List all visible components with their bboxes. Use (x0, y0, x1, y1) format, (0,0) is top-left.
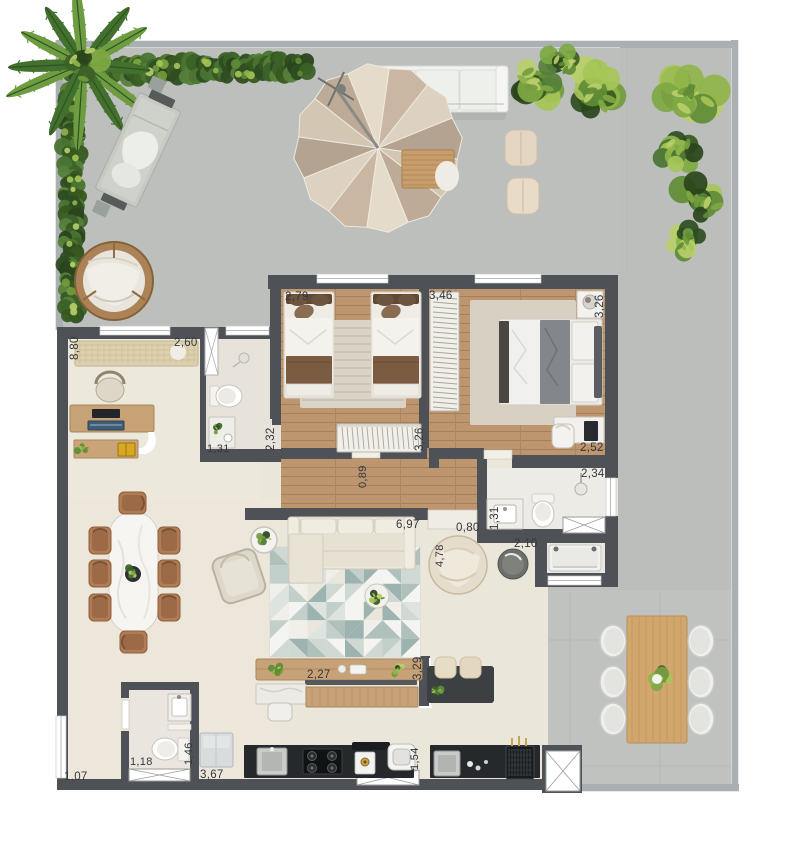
svg-text:2,32: 2,32 (265, 427, 277, 451)
svg-text:6,97: 6,97 (396, 519, 420, 531)
svg-text:2,34: 2,34 (581, 468, 605, 480)
svg-text:2,60: 2,60 (174, 337, 198, 349)
svg-text:0,80: 0,80 (456, 522, 480, 534)
svg-text:4,78: 4,78 (434, 544, 446, 567)
svg-text:3,29: 3,29 (412, 656, 424, 680)
svg-text:2,10: 2,10 (514, 538, 538, 550)
svg-text:3,67: 3,67 (200, 769, 224, 781)
svg-text:0,89: 0,89 (357, 465, 369, 488)
svg-text:1,07: 1,07 (64, 771, 88, 783)
svg-text:8,80: 8,80 (69, 336, 81, 360)
svg-text:1,31: 1,31 (207, 443, 230, 455)
svg-text:1,18: 1,18 (130, 756, 153, 768)
svg-text:2,79: 2,79 (285, 291, 309, 303)
svg-text:1,54: 1,54 (409, 747, 421, 770)
svg-text:2,52: 2,52 (580, 442, 604, 454)
svg-text:3,26: 3,26 (594, 294, 606, 318)
svg-text:1,31: 1,31 (489, 506, 501, 530)
svg-text:3,26: 3,26 (414, 427, 426, 451)
svg-text:3,46: 3,46 (429, 290, 453, 302)
svg-text:2,27: 2,27 (307, 669, 331, 681)
svg-text:1,46: 1,46 (183, 742, 195, 765)
